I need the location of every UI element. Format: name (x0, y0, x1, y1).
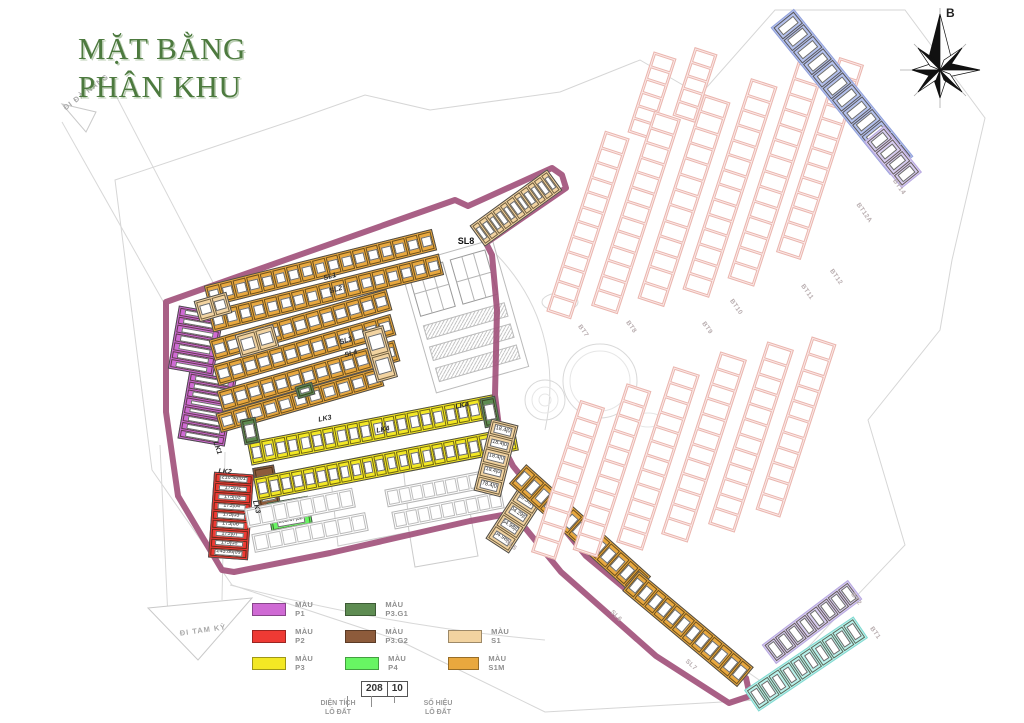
lot-label (337, 381, 350, 393)
lot-label (363, 461, 374, 475)
lot-label (409, 415, 420, 429)
lot-label (301, 265, 313, 278)
lot-label (269, 479, 280, 493)
lot-label (217, 366, 230, 379)
label-bt8: BT8 (624, 319, 637, 334)
legend-label: MÀU P1 (295, 600, 320, 618)
lot-label (374, 273, 386, 286)
lot-label (360, 424, 371, 438)
lot-label: 218.4|01 (493, 424, 513, 436)
lot-label (240, 336, 256, 351)
lot-label (287, 268, 299, 281)
lot-label (433, 410, 444, 424)
lot-label (374, 295, 387, 308)
lot-label (284, 347, 297, 360)
arm-sl6 (622, 571, 754, 687)
legend-label: MÀU S1M (488, 654, 516, 672)
lot-label (280, 296, 292, 309)
lot-label: 175|02 (219, 485, 246, 492)
lot-label (361, 299, 374, 312)
lot-label (334, 307, 347, 320)
legend-swatch (252, 630, 286, 643)
lot-label (299, 386, 311, 395)
lot-label (469, 440, 480, 454)
legend-swatch (345, 657, 379, 670)
lot-label (354, 252, 366, 265)
lot-label (323, 385, 336, 397)
lot-label (288, 439, 299, 453)
lot-label (221, 392, 234, 405)
lot-label: 175|07 (216, 531, 243, 538)
lot-label (427, 260, 439, 273)
lot-label (257, 481, 268, 495)
lot-label (263, 443, 274, 457)
lot-label (264, 402, 277, 414)
lot-label (433, 447, 444, 461)
lot-label (261, 275, 273, 288)
label-bt1: BT1 (868, 625, 881, 640)
lot-label (445, 408, 456, 422)
lot-label (244, 359, 257, 372)
lot-label (421, 413, 432, 427)
lot-label: 175|05 (217, 512, 244, 519)
lots-layer: 216.98|01175|02175|03175|04175|05175|061… (0, 0, 1024, 723)
head-s1-c-lot (371, 352, 395, 381)
legend-label: MÀU P3.G2 (385, 627, 417, 645)
lot-label (327, 258, 339, 271)
lot-label (274, 271, 286, 284)
lot-label (312, 434, 323, 448)
block-lk2-red-lot: 243.86|09 (210, 547, 246, 558)
label-bt9: BT9 (700, 320, 713, 335)
lot-label (398, 454, 409, 468)
block-p3g1-c-lot (297, 384, 313, 397)
lot-label (307, 314, 320, 327)
lot-label (293, 293, 305, 306)
area-caption-line1: DIỆN TÍCH (312, 700, 364, 709)
legend-swatch (448, 657, 479, 670)
lot-label (213, 341, 226, 354)
site-plan-canvas: 216.98|01175|02175|03175|04175|05175|061… (0, 0, 1024, 723)
page-title: MẶT BẰNG PHÂN KHU (78, 30, 246, 106)
label-bt12: BT12 (828, 268, 844, 286)
row-sl8 (470, 169, 563, 246)
lot-label (469, 403, 480, 417)
lot-label (244, 424, 256, 439)
lot-label (329, 362, 342, 375)
example-area-value: 208 (362, 682, 387, 696)
lot-label (275, 377, 288, 390)
area-caption-line2: LÔ ĐẤT (312, 709, 364, 718)
lot-label (302, 369, 315, 382)
lot-label (387, 270, 399, 283)
lot-label (375, 458, 386, 472)
legend-label: MÀU P3.G1 (385, 600, 417, 618)
lot-label (276, 441, 287, 455)
legend-item-m-u-p4: MÀU P4 (345, 654, 413, 672)
lot-label (298, 343, 311, 356)
legend-item-m-u-p3-g1: MÀU P3.G1 (345, 600, 418, 618)
label-lk2: LK2 (218, 468, 232, 476)
lot-label (266, 300, 278, 313)
lot-label (293, 474, 304, 488)
compass-north-label: B (946, 6, 955, 20)
lot-label (234, 281, 246, 294)
lot-label (336, 429, 347, 443)
lot-label (257, 355, 270, 368)
lot-label: 243.86|09 (215, 549, 242, 556)
lot-label (380, 245, 392, 258)
leader-line-number (394, 696, 414, 703)
lot-label (484, 404, 496, 421)
label-road-tam-ky: ĐI TAM KỲ (179, 622, 227, 637)
number-caption-line2: LÔ ĐẤT (414, 709, 462, 718)
legend-label: MÀU P4 (388, 654, 413, 672)
lot-label (304, 472, 315, 486)
lot-label (445, 445, 456, 459)
lot-label (397, 417, 408, 431)
lot-label: 218.4|04 (483, 466, 503, 478)
lot-label: 218.4|02 (490, 438, 510, 450)
lot-label (314, 261, 326, 274)
lot-label (199, 302, 213, 316)
lot-label (324, 431, 335, 445)
lot-label (352, 377, 365, 389)
legend-swatch (345, 603, 376, 616)
lot-label (360, 276, 372, 289)
example-number-value: 10 (387, 682, 407, 696)
legend-item-m-u-p3-g2: MÀU P3.G2 (345, 627, 418, 645)
label-bt10: BT10 (728, 298, 744, 316)
page-title-line1: MẶT BẰNG (78, 30, 246, 68)
lot-label (279, 398, 292, 410)
lot-label (315, 365, 328, 378)
page-title-line2: PHÂN KHU (78, 68, 246, 106)
lot-label (457, 442, 468, 456)
legend-swatch (345, 630, 376, 643)
label-sl8: SL8 (458, 236, 475, 246)
lot-label (300, 436, 311, 450)
legend-label: MÀU S1 (491, 627, 516, 645)
legend-label: MÀU P3 (295, 654, 320, 672)
lot-label (340, 255, 352, 268)
lot-label (328, 468, 339, 482)
lot-label (258, 331, 274, 346)
lot-label: 175|04 (218, 503, 245, 510)
lot-label (414, 263, 426, 276)
lot-label (422, 449, 433, 463)
lot-label (253, 303, 265, 316)
lot-label (386, 456, 397, 470)
number-caption-line1: SỐ HIỆU (414, 700, 462, 709)
compass-star (898, 4, 982, 112)
lot-label (311, 339, 324, 352)
lot-label (342, 358, 355, 371)
label-lk3: LK3 (318, 414, 332, 423)
legend-item-m-u-p2: MÀU P2 (252, 627, 320, 645)
label-sl7: SL7 (684, 658, 698, 672)
lot-label (347, 280, 359, 293)
legend-swatch (448, 630, 482, 643)
lot-label: 216.98|01 (220, 476, 247, 483)
lot-label (271, 351, 284, 364)
lot-label (321, 311, 334, 324)
lot-label: 218.4|03 (486, 452, 506, 464)
lot-label: 278.4|05 (479, 479, 499, 491)
legend-label: MÀU P2 (295, 627, 320, 645)
row-white-b-lot (351, 514, 367, 531)
lot-label (400, 266, 412, 279)
lot-label (214, 298, 228, 312)
lot-label: 175|06 (217, 522, 244, 529)
label-sl6: SL6 (609, 609, 623, 623)
lot-label (261, 381, 274, 394)
lot-label (368, 333, 385, 351)
lot-label (340, 465, 351, 479)
legend-item-m-u-p1: MÀU P1 (252, 600, 320, 618)
lot-label (355, 354, 368, 367)
lot-label (351, 463, 362, 477)
lot-label (348, 427, 359, 441)
label-bt12a: BT12A (855, 202, 874, 225)
lot-label (280, 322, 293, 335)
lot-label (248, 278, 260, 291)
legend-item-m-u-s1: MÀU S1 (448, 627, 516, 645)
legend-item-m-u-p3: MÀU P3 (252, 654, 320, 672)
row-white-a-lot (338, 490, 353, 508)
lot-label (234, 389, 247, 402)
lot-label (239, 307, 251, 320)
legend-item-m-u-s1m: MÀU S1M (448, 654, 516, 672)
lot-label (306, 290, 318, 303)
lot-label (347, 303, 360, 316)
legend-swatch (252, 603, 286, 616)
lot-label (316, 470, 327, 484)
lot-label: 175|03 (219, 494, 246, 501)
lot-label (281, 477, 292, 491)
example-area-caption: DIỆN TÍCH LÔ ĐẤT (312, 700, 364, 717)
lot-example-box: 208 10 (361, 681, 408, 697)
compass-rose: B (898, 4, 982, 117)
lot-label (367, 248, 379, 261)
block-p3g1-a-lot (242, 419, 258, 443)
lot-label (375, 357, 392, 375)
example-number-caption: SỐ HIỆU LÔ ĐẤT (414, 700, 462, 717)
lot-label (230, 363, 243, 376)
lot-label (420, 235, 432, 248)
lot-label (251, 446, 262, 460)
lot-label: 175|08 (215, 540, 242, 547)
lot-label (406, 238, 418, 251)
lot-label (410, 452, 421, 466)
lot-label (220, 415, 233, 427)
lot-label (248, 385, 261, 398)
label-bt11: BT11 (799, 283, 815, 301)
lot-label (294, 318, 307, 331)
head-s1-c-lot (364, 327, 388, 356)
lot-label (325, 336, 338, 349)
legend-swatch (252, 657, 286, 670)
lot-label (393, 242, 405, 255)
label-bt7: BT7 (576, 323, 589, 338)
